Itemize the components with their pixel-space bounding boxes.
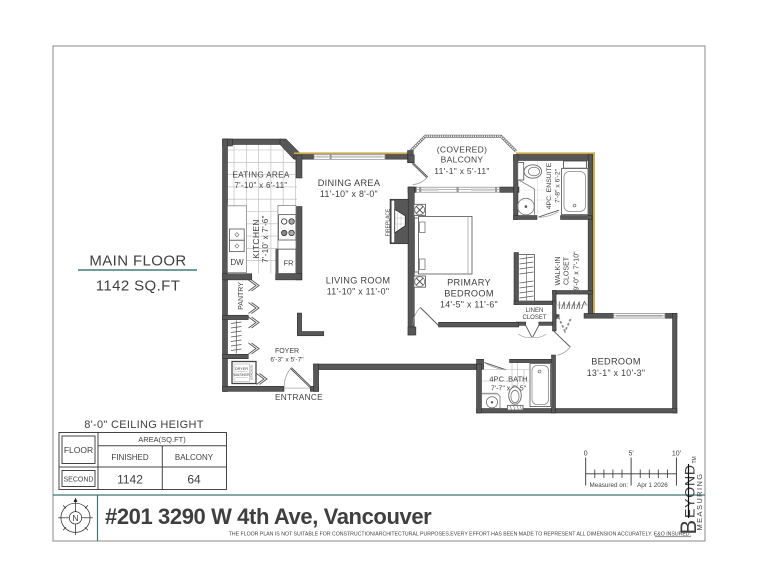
svg-text:DW: DW [230,258,244,267]
svg-text:FLOOR: FLOOR [64,445,93,455]
svg-text:8'-0" CEILING HEIGHT: 8'-0" CEILING HEIGHT [84,419,204,431]
svg-text:N: N [72,513,78,523]
svg-text:WALK-IN: WALK-IN [555,257,562,286]
svg-text:PRIMARY: PRIMARY [447,278,491,288]
svg-text:MEASURING: MEASURING [695,472,704,530]
svg-text:0: 0 [584,451,588,458]
svg-text:CLOSET: CLOSET [564,256,571,285]
svg-text:AREA(SQ.FT): AREA(SQ.FT) [138,435,186,444]
svg-text:BALCONY: BALCONY [441,155,484,165]
svg-text:6'-3" x 5'-7": 6'-3" x 5'-7" [270,357,304,364]
svg-text:11'-1" x 5'-11": 11'-1" x 5'-11" [434,166,490,176]
svg-text:TM: TM [692,456,698,463]
svg-text:THE FLOOR PLAN IS NOT SUITABL: THE FLOOR PLAN IS NOT SUITABLE FOR CONST… [229,532,691,538]
svg-text:11'-10" x 8'-0": 11'-10" x 8'-0" [320,189,378,199]
svg-text:4PC. ENSUITE: 4PC. ENSUITE [546,162,553,209]
svg-text:BALCONY: BALCONY [175,453,214,462]
svg-text:64: 64 [187,473,201,487]
svg-text:#201 3290 W 4th Ave, Vancouver: #201 3290 W 4th Ave, Vancouver [105,504,432,529]
svg-text:Measured on:: Measured on: [589,482,628,489]
svg-text:Apr 1 2026: Apr 1 2026 [637,482,668,489]
svg-text:EATING AREA: EATING AREA [232,171,290,180]
svg-text:DRYER: DRYER [235,367,248,371]
svg-text:FINISHED: FINISHED [111,453,149,462]
svg-text:FR: FR [284,259,295,268]
svg-text:(COVERED): (COVERED) [437,145,487,155]
svg-text:(STACKED): (STACKED) [250,365,254,380]
svg-text:ENTRANCE: ENTRANCE [275,392,323,402]
svg-text:CLOSET: CLOSET [522,315,546,321]
svg-text:7'-10' x 7'-6": 7'-10' x 7'-6" [261,215,270,263]
svg-text:10': 10' [672,451,681,458]
svg-text:BEDROOM: BEDROOM [591,357,641,367]
svg-text:MAIN FLOOR: MAIN FLOOR [89,253,186,270]
svg-text:14'-5" x 11'-6": 14'-5" x 11'-6" [440,300,498,310]
svg-text:PANTRY: PANTRY [238,282,245,310]
svg-text:5': 5' [628,451,633,458]
svg-text:7'-10" x 6'-11": 7'-10" x 6'-11" [234,181,287,190]
svg-text:FIREPLACE: FIREPLACE [386,208,392,236]
svg-text:WASHER: WASHER [233,373,250,377]
svg-text:7'-8" x 6'-2": 7'-8" x 6'-2" [555,168,562,203]
svg-text:13'-1" x 10'-3": 13'-1" x 10'-3" [587,368,646,378]
svg-text:7'-7" x 5'-5": 7'-7" x 5'-5" [491,386,527,393]
svg-text:9'-0" x 7'-10": 9'-0" x 7'-10" [574,251,581,291]
svg-text:11'-10" x 11'-0": 11'-10" x 11'-0" [327,287,390,297]
svg-text:LIVING ROOM: LIVING ROOM [326,276,391,286]
svg-text:KITCHEN: KITCHEN [251,219,261,258]
svg-text:4PC .BATH: 4PC .BATH [489,375,527,384]
svg-text:SECOND: SECOND [64,477,94,484]
svg-text:BEDROOM: BEDROOM [444,289,494,299]
svg-text:DINING AREA: DINING AREA [318,178,381,188]
svg-text:1142: 1142 [117,473,143,487]
svg-text:1142 SQ.FT: 1142 SQ.FT [96,278,181,295]
svg-text:LINEN: LINEN [526,308,544,314]
svg-text:FOYER: FOYER [275,348,299,355]
